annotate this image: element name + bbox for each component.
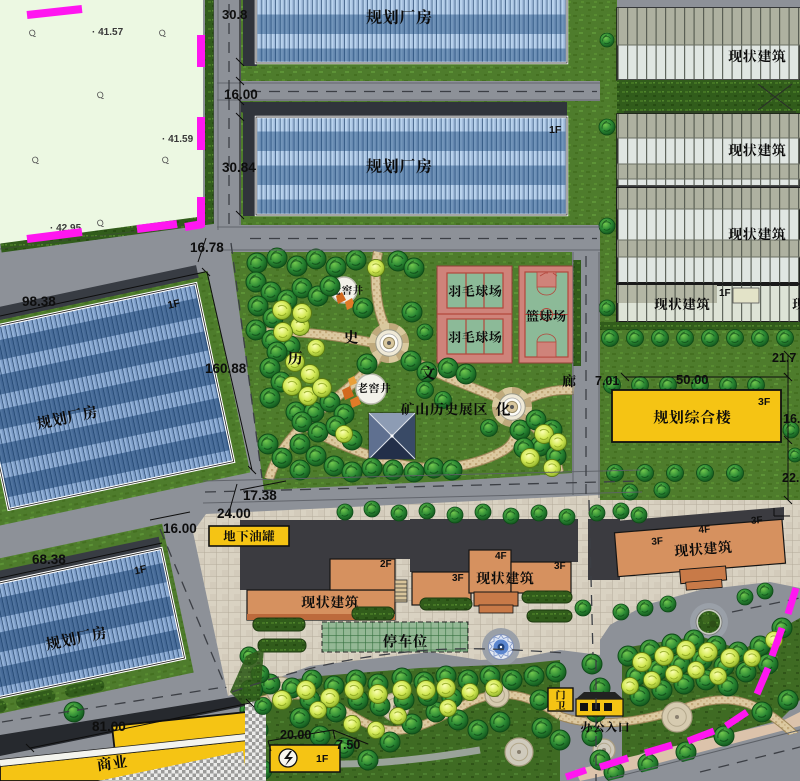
svg-text:16.00: 16.00 (163, 521, 197, 536)
svg-text:20.00: 20.00 (280, 728, 311, 742)
svg-text:· 41.59: · 41.59 (162, 134, 194, 145)
svg-text:22.0: 22.0 (782, 471, 800, 485)
svg-text:7.01: 7.01 (595, 374, 619, 388)
svg-text:16.0: 16.0 (783, 412, 800, 426)
svg-text:7.50: 7.50 (336, 738, 360, 752)
svg-text:· 41.57: · 41.57 (92, 27, 124, 38)
svg-text:160.88: 160.88 (205, 361, 247, 376)
svg-text:1F: 1F (549, 124, 562, 136)
svg-text:21.7: 21.7 (772, 351, 796, 365)
svg-text:16.00: 16.00 (224, 87, 258, 102)
svg-text:1F: 1F (719, 288, 731, 299)
svg-text:81.00: 81.00 (92, 719, 126, 734)
svg-text:98.38: 98.38 (22, 294, 56, 309)
svg-text:30.8: 30.8 (222, 7, 247, 22)
svg-text:4F: 4F (698, 524, 711, 536)
svg-text:2F: 2F (380, 559, 392, 570)
svg-text:1F: 1F (316, 753, 329, 765)
svg-text:3F: 3F (758, 396, 771, 408)
svg-text:3F: 3F (651, 536, 664, 548)
svg-text:30.84: 30.84 (222, 160, 256, 175)
svg-text:50.00: 50.00 (676, 372, 709, 387)
svg-text:4F: 4F (495, 551, 507, 562)
svg-text:24.00: 24.00 (217, 506, 251, 521)
svg-text:3F: 3F (452, 573, 464, 584)
svg-text:3F: 3F (751, 515, 764, 527)
svg-text:16.78: 16.78 (190, 240, 224, 255)
svg-text:68.38: 68.38 (32, 552, 66, 567)
svg-text:3F: 3F (554, 561, 566, 572)
svg-text:17.38: 17.38 (243, 488, 277, 503)
